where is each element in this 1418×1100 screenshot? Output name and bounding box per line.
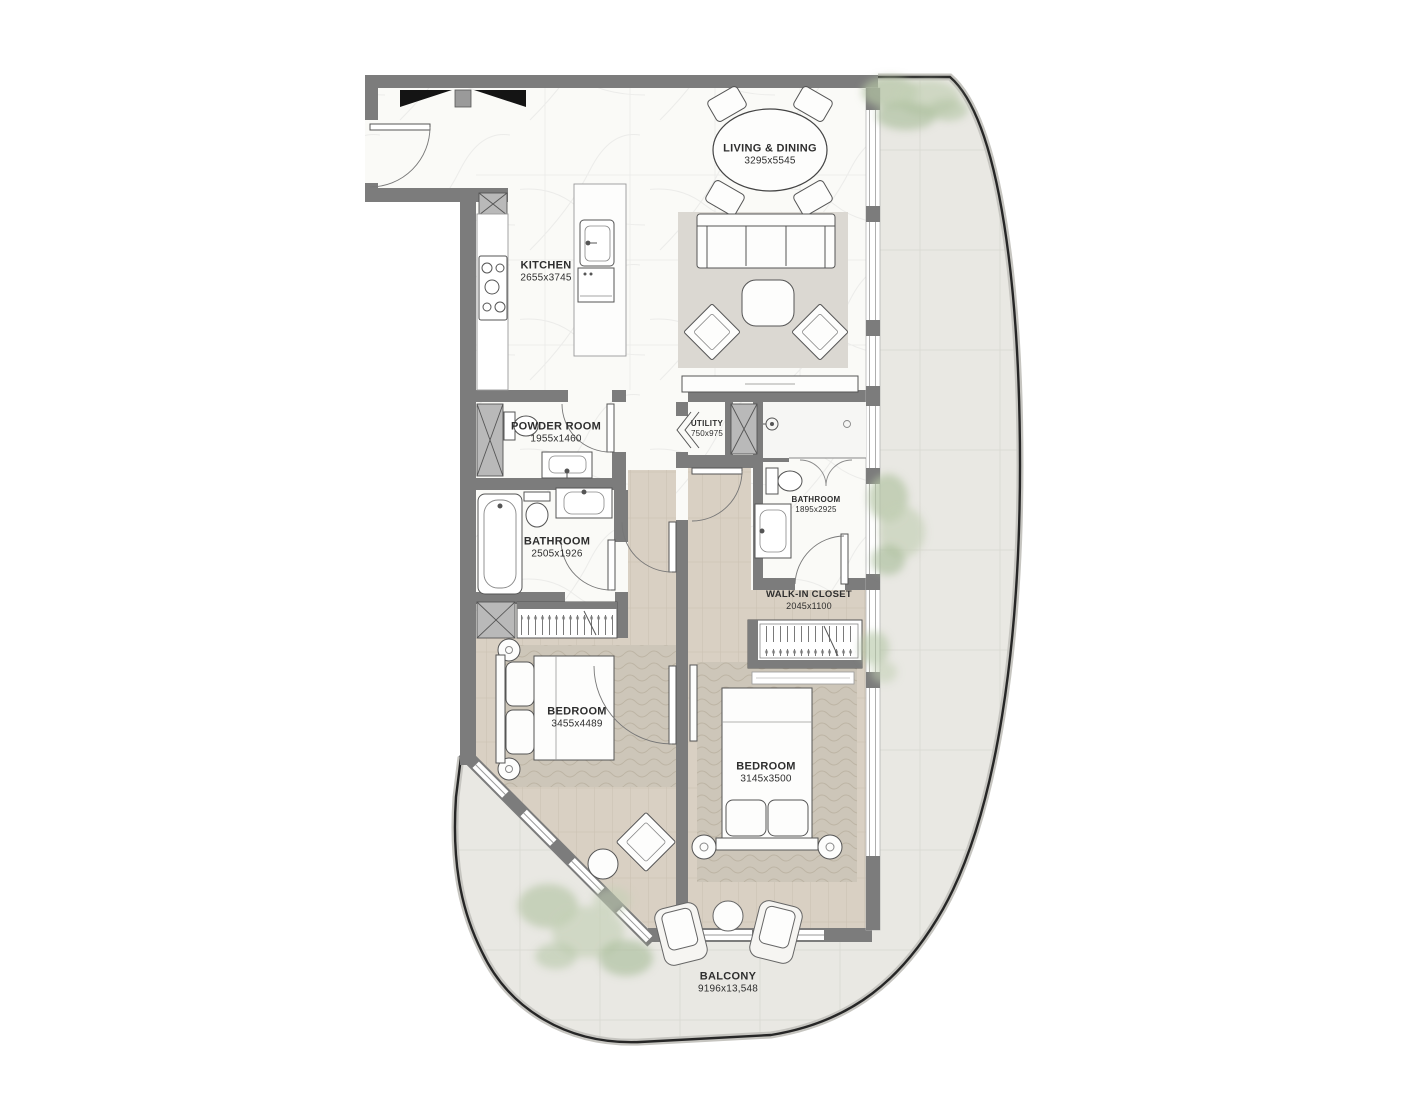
- nightstand-icon: [818, 835, 842, 859]
- side-table-round: [588, 849, 618, 879]
- bed-double: [716, 688, 818, 850]
- wall-mirror: [690, 665, 697, 741]
- walkin-shelf: [752, 672, 854, 684]
- sink-icon-bathroom-guest: [556, 488, 612, 518]
- sink-icon-powder: [542, 452, 592, 478]
- shaft-utility: [731, 404, 757, 454]
- shaft-entry: [479, 193, 507, 215]
- shaft-powder: [477, 404, 503, 476]
- kitchen-sink-icon: [580, 220, 614, 266]
- dining-table: [713, 109, 827, 191]
- tv-console: [682, 376, 858, 392]
- dishwasher-icon: [578, 268, 614, 302]
- shower-floor: [763, 402, 866, 458]
- cooktop-icon: [479, 256, 507, 320]
- toilet-icon-bathroom-guest: [524, 492, 550, 527]
- walkin-closet-unit: [748, 620, 862, 684]
- nightstand-icon: [692, 835, 716, 859]
- coffee-table: [742, 280, 794, 326]
- sofa: [697, 214, 835, 268]
- shaft-bedroom1: [477, 602, 515, 638]
- bedroom1-wardrobe: [517, 602, 617, 638]
- balcony-table-round: [713, 901, 743, 931]
- floor-plan-drawing: [0, 0, 1418, 1100]
- bathtub-icon: [478, 494, 522, 594]
- floor-plan-page: LIVING & DINING 3295x5545 KITCHEN 2655x3…: [0, 0, 1418, 1100]
- sink-icon-bathroom-main: [755, 504, 791, 558]
